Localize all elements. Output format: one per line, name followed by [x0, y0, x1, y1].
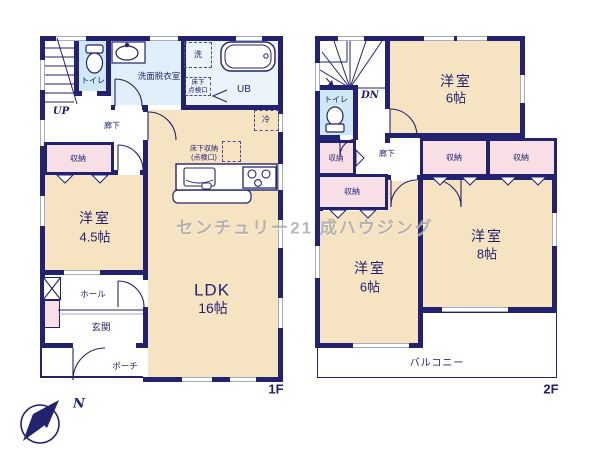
stairs-2f — [320, 41, 385, 88]
toilet-icon-2f — [326, 107, 344, 132]
stairs-up-label: UP — [53, 107, 69, 117]
closet-door-marks — [57, 150, 546, 218]
closet-2f-right-label: 収納 — [513, 154, 529, 162]
room6bottom-name-label: 洋室 — [354, 261, 386, 275]
stairs-dn-label: DN — [361, 91, 379, 101]
floor2-tag: 2F — [543, 382, 558, 397]
ldk-name-label: LDK — [194, 282, 230, 299]
washer-label: 洗 — [194, 51, 202, 59]
hatch-label-1: 床下 — [192, 80, 205, 87]
bath-label: UB — [237, 85, 251, 95]
room45-name-label: 洋室 — [79, 211, 111, 225]
corridor-2f-label: 廊下 — [379, 150, 395, 158]
closet-1f-label: 収納 — [70, 155, 86, 163]
room6top-name-label: 洋室 — [440, 74, 472, 88]
hatch-label-2: 点検口 — [188, 88, 208, 95]
room6bottom-size-label: 6帖 — [360, 281, 380, 294]
toilet-2f-label: トイレ — [324, 96, 348, 104]
room45-size-label: 4.5帖 — [79, 231, 110, 244]
compass-icon — [21, 400, 59, 443]
floorplan-canvas: UP トイレ 洗面脱衣室 洗 床下 点検口 UB 冷 廊下 収納 洋室 4.5帖… — [0, 0, 600, 450]
washroom-label: 洗面脱衣室 — [138, 72, 181, 81]
compass-north-label: N — [73, 398, 85, 411]
balcony-label: バルコニー — [410, 359, 465, 369]
sink-icon — [112, 42, 145, 63]
ldk-size-label: 16帖 — [198, 301, 228, 315]
underfloor-storage-label-2: (点検口) — [191, 155, 217, 162]
room8-size-label: 8帖 — [477, 248, 497, 261]
fridge-label: 冷 — [262, 116, 270, 124]
underfloor-storage-label-1: 床下収納 — [190, 146, 218, 153]
watermark: センチュリー21 成ハウジング — [176, 214, 434, 239]
shoe-cabinet-x — [43, 277, 61, 300]
hall-label: ホール — [80, 290, 106, 299]
floor1-tag: 1F — [268, 382, 283, 397]
porch-label: ポーチ — [112, 362, 138, 371]
kitchen-icon — [173, 164, 277, 203]
room8-name-label: 洋室 — [471, 229, 503, 243]
corridor-1f-label: 廊下 — [104, 122, 120, 130]
toilet-icon-1f — [86, 45, 103, 73]
bathtub-icon — [221, 42, 275, 71]
room6top-size-label: 6帖 — [446, 92, 466, 105]
closet-2f-wide-label: 収納 — [344, 188, 360, 196]
closet-2f-mid-label: 収納 — [446, 154, 462, 162]
toilet-1f-label: トイレ — [81, 77, 105, 85]
entrance-step — [58, 310, 143, 314]
closet-2f-small-label: 収納 — [329, 154, 344, 162]
underfloor-storage-box — [222, 141, 241, 162]
entrance-label: 玄関 — [91, 323, 110, 333]
stairs-1f — [45, 38, 77, 104]
